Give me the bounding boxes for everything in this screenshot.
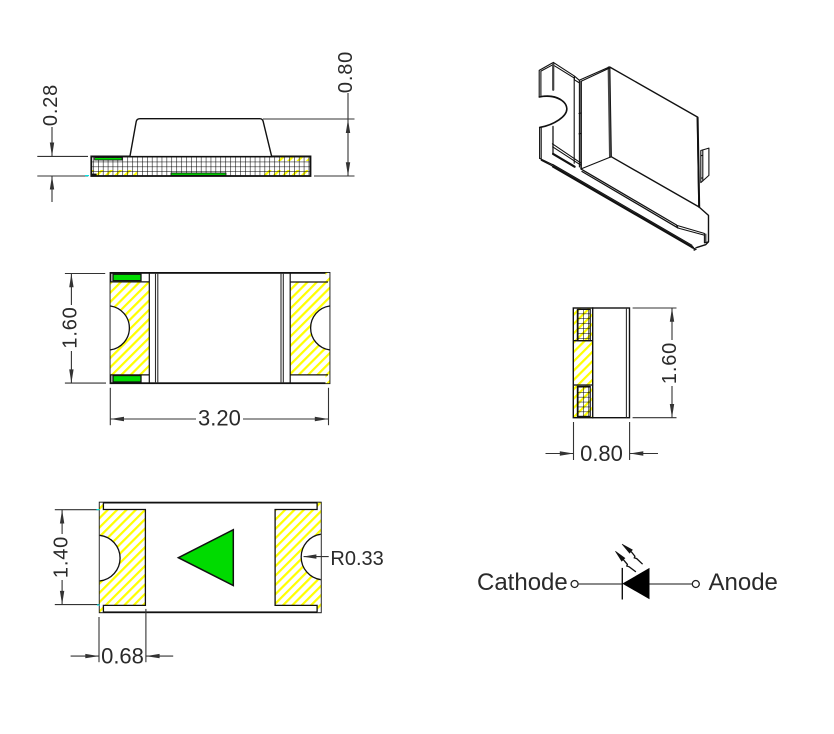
svg-text:0.80: 0.80 [580,441,623,466]
svg-text:0.80: 0.80 [335,51,357,93]
svg-text:0.28: 0.28 [40,84,62,126]
svg-text:1.40: 1.40 [51,536,73,578]
svg-text:0.68: 0.68 [101,644,144,669]
svg-text:Anode: Anode [709,569,778,596]
svg-text:1.60: 1.60 [60,306,82,348]
svg-text:3.20: 3.20 [198,406,241,431]
svg-text:Cathode: Cathode [477,569,568,596]
svg-text:R0.33: R0.33 [330,548,383,570]
svg-text:1.60: 1.60 [659,342,681,384]
